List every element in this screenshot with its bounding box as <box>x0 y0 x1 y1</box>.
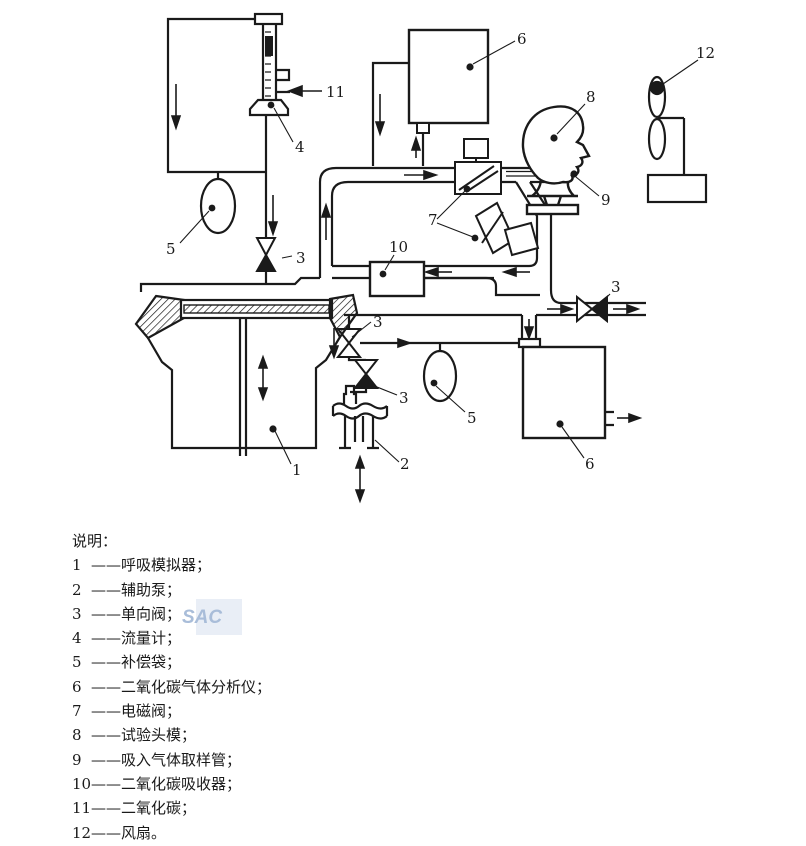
analyzer-b-outlet <box>605 412 614 425</box>
legend-item-2: 2——辅助泵； <box>72 578 271 602</box>
callout-dot <box>268 102 275 109</box>
legend-num: 1 <box>72 553 91 577</box>
callout-flow-meter: 4 <box>295 138 305 156</box>
bellows-body <box>148 337 340 448</box>
sampling-point-dot <box>570 170 577 177</box>
test-head <box>523 106 589 214</box>
legend-item-11: 11——二氧化碳； <box>72 796 271 820</box>
callout-dot <box>556 420 563 427</box>
legend-item-12: 12——风扇。 <box>72 821 271 845</box>
legend-num: 4 <box>72 626 91 650</box>
legend-num: 11 <box>72 796 91 820</box>
co2-analyzer-b <box>523 347 605 438</box>
arrow-right-analyzer-b-out <box>617 414 640 422</box>
legend-num: 10 <box>72 772 91 796</box>
legend-num: 5 <box>72 650 91 674</box>
analyzer-a-return <box>373 63 409 166</box>
fan <box>648 77 706 202</box>
solenoid-body-2 <box>476 203 514 253</box>
callout-dot <box>431 380 438 387</box>
legend-label: ——二氧化碳气体分析仪； <box>91 675 271 699</box>
flow-meter-cap <box>255 14 282 24</box>
arrow-down-analyzer-b <box>525 319 533 338</box>
callout-fan: 12 <box>696 44 715 62</box>
legend-num: 9 <box>72 748 91 772</box>
callout-breathing-simulator: 1 <box>292 461 302 479</box>
solenoid-coil-box-2 <box>505 223 538 255</box>
piston-rod <box>240 318 246 456</box>
legend-label: ——补偿袋； <box>91 650 181 674</box>
legend: 说明： 1——呼吸模拟器； 2——辅助泵； 3——单向阀； 4——流量计； 5—… <box>72 529 271 845</box>
legend-item-8: 8——试验头模； <box>72 723 271 747</box>
analyzer-b-inlet <box>519 339 540 347</box>
legend-item-7: 7——电磁阀； <box>72 699 271 723</box>
pump-inner-tube <box>355 416 363 442</box>
legend-num: 2 <box>72 578 91 602</box>
fan-base <box>648 175 706 202</box>
legend-num: 12 <box>72 821 91 845</box>
pipe-co2-loop <box>168 19 266 172</box>
legend-label: ——试验头模； <box>91 723 196 747</box>
callout-check-valve-c: 3 <box>399 389 409 407</box>
callout-sampling-tube: 9 <box>601 191 611 209</box>
callout-dot <box>380 271 387 278</box>
solenoid-valve-1 <box>455 139 501 194</box>
legend-label: ——辅助泵； <box>91 578 181 602</box>
head-base <box>527 205 578 214</box>
arrow-right-exhaust-1 <box>547 305 572 313</box>
legend-item-9: 9——吸入气体取样管； <box>72 748 271 772</box>
co2-analyzer-a <box>409 30 488 123</box>
callout-co2-analyzer-a: 6 <box>517 30 527 48</box>
arrow-up-riser <box>322 205 330 240</box>
auxiliary-pump <box>333 386 387 448</box>
legend-label: ——二氧化碳吸收器； <box>91 772 241 796</box>
legend-label: ——吸入气体取样管； <box>91 748 241 772</box>
legend-num: 7 <box>72 699 91 723</box>
legend-item-6: 6——二氧化碳气体分析仪； <box>72 675 271 699</box>
callout-solenoid-valve: 7 <box>428 211 438 229</box>
manifold-top-left <box>141 278 320 292</box>
legend-label: ——二氧化碳； <box>91 796 196 820</box>
arrow-up-sample-line <box>412 138 420 158</box>
callout-co2: 11 <box>326 83 345 101</box>
pump-neck <box>344 386 356 404</box>
breathing-simulator <box>136 295 357 456</box>
legend-label: ——呼吸模拟器； <box>91 553 211 577</box>
legend-item-1: 1——呼吸模拟器； <box>72 553 271 577</box>
arrow-right-main-tube <box>404 171 436 179</box>
analyzer-a-stub <box>417 123 429 133</box>
arrow-left-channel-1 <box>426 268 452 276</box>
diaphragm-left-hatch <box>136 296 184 338</box>
flow-meter-inlet-port <box>276 70 290 92</box>
legend-label: ——电磁阀； <box>91 699 181 723</box>
arrow-co2-inlet <box>289 86 322 96</box>
pump-body <box>339 416 379 448</box>
arrow-updown-bellows <box>259 357 267 399</box>
legend-label: ——流量计； <box>91 626 181 650</box>
arrow-right-pump-line <box>380 339 410 347</box>
legend-label: ——风扇。 <box>91 821 166 845</box>
pump-flange <box>333 404 387 419</box>
callout-dot <box>209 205 216 212</box>
figure-page: 1 2 3 3 3 3 4 5 5 6 6 7 8 9 10 11 12 SAC… <box>0 0 806 846</box>
callout-check-valve-d: 3 <box>611 278 621 296</box>
arrow-right-exhaust-2 <box>613 305 638 313</box>
legend-label: ——单向阀； <box>91 602 181 626</box>
channel-bottom-step <box>424 278 540 295</box>
fan-hub <box>651 82 663 94</box>
arrow-down-analyzer-return <box>376 94 384 134</box>
compensation-bag-b <box>424 351 456 401</box>
check-valve-exhaust <box>577 297 607 321</box>
callout-dot <box>269 425 276 432</box>
schematic-diagram: 1 2 3 3 3 3 4 5 5 6 6 7 8 9 10 11 12 <box>0 0 806 525</box>
callout-co2-analyzer-b: 6 <box>585 455 595 473</box>
callout-compensation-bag-a: 5 <box>166 240 176 258</box>
legend-num: 8 <box>72 723 91 747</box>
callout-check-valve-a: 3 <box>296 249 306 267</box>
diagram-canvas: 1 2 3 3 3 3 4 5 5 6 6 7 8 9 10 11 12 <box>0 0 806 525</box>
head-profile <box>523 106 589 183</box>
fan-blade-bottom <box>649 119 665 159</box>
solenoid-coil-box <box>464 139 488 158</box>
diaphragm-hatch <box>184 305 329 313</box>
callout-auxiliary-pump: 2 <box>400 455 410 473</box>
arrow-down-left-loop <box>172 84 180 128</box>
legend-num: 3 <box>72 602 91 626</box>
riser-left-wall <box>320 168 336 278</box>
flow-meter-float <box>265 36 273 56</box>
callout-test-head: 8 <box>586 88 596 106</box>
callout-check-valve-b: 3 <box>373 313 383 331</box>
flow-meter <box>250 14 290 115</box>
legend-item-10: 10——二氧化碳吸收器； <box>72 772 271 796</box>
check-valve-a <box>257 238 275 271</box>
compensation-bag-a <box>201 179 235 233</box>
legend-title: 说明： <box>72 529 271 553</box>
callout-dot <box>466 63 473 70</box>
legend-item-5: 5——补偿袋； <box>72 650 271 674</box>
legend-item-3: 3——单向阀； <box>72 602 271 626</box>
downcomer-right-wall <box>530 182 646 303</box>
callout-dot <box>550 134 557 141</box>
callout-dot <box>472 235 479 242</box>
legend-num: 6 <box>72 675 91 699</box>
arrow-down-flowmeter-drop <box>269 195 277 234</box>
check-valve-pump-2 <box>355 360 377 388</box>
arrow-updown-pump <box>356 457 364 501</box>
riser-right-wall <box>332 182 348 266</box>
callout-co2-absorber: 10 <box>389 238 408 256</box>
legend-item-4: 4——流量计； <box>72 626 271 650</box>
co2-absorber <box>370 262 424 296</box>
arrow-left-channel-2 <box>504 268 530 276</box>
callout-compensation-bag-b: 5 <box>467 409 477 427</box>
